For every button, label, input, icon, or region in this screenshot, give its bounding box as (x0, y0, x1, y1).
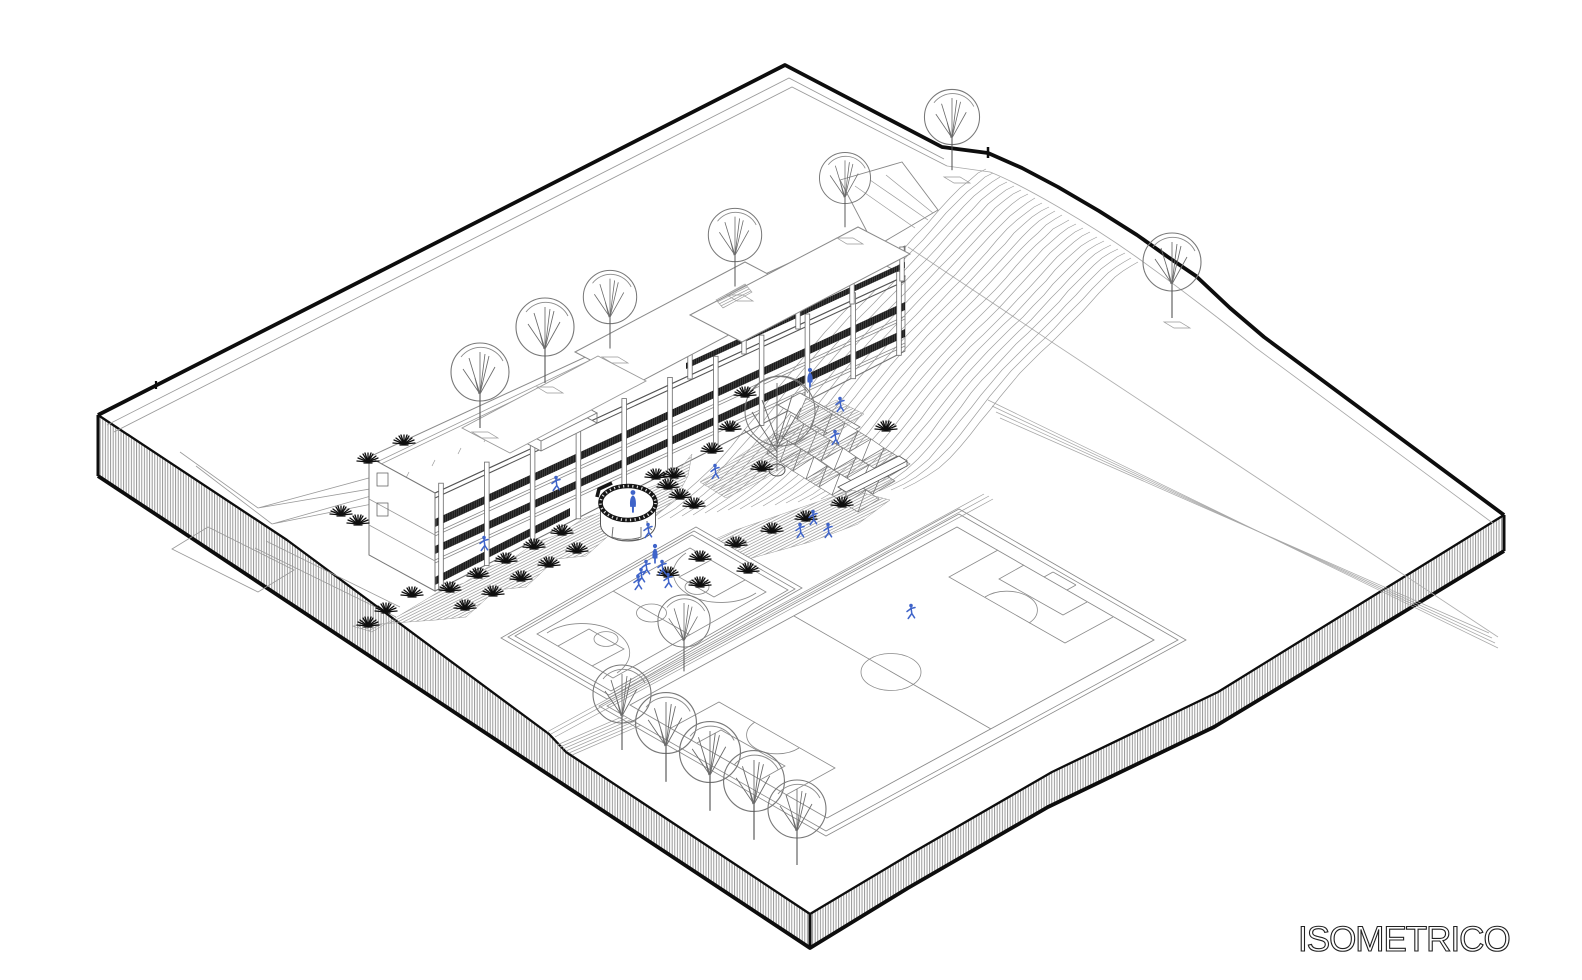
svg-text:ISOMETRICO: ISOMETRICO (1298, 920, 1510, 959)
